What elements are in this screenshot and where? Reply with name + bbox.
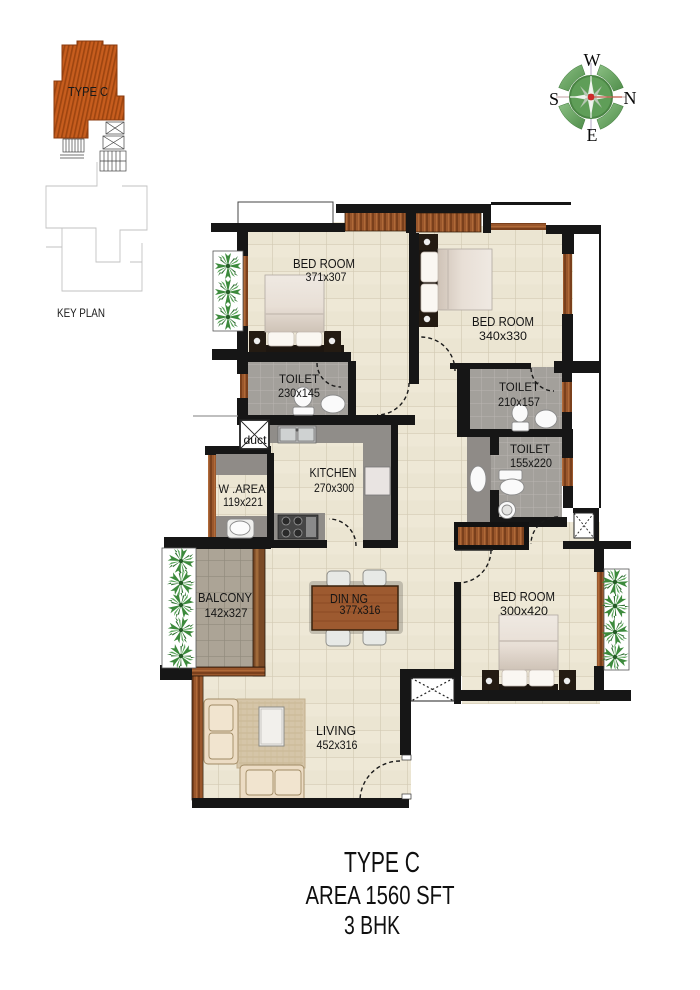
svg-text:300x420: 300x420: [500, 604, 548, 618]
svg-text:TOILET: TOILET: [279, 372, 320, 386]
svg-text:377x316: 377x316: [340, 603, 381, 617]
svg-text:270x300: 270x300: [314, 481, 354, 495]
svg-text:KEY PLAN: KEY PLAN: [57, 306, 105, 320]
svg-text:E: E: [587, 125, 598, 145]
svg-text:TYPE C: TYPE C: [344, 847, 420, 879]
svg-text:LIVING: LIVING: [316, 723, 356, 738]
svg-text:210x157: 210x157: [498, 395, 540, 409]
svg-text:BED ROOM: BED ROOM: [293, 256, 355, 271]
svg-text:TOILET: TOILET: [499, 380, 540, 394]
svg-text:N: N: [624, 88, 637, 108]
svg-text:TOILET: TOILET: [510, 442, 551, 456]
svg-text:BED ROOM: BED ROOM: [493, 589, 555, 604]
svg-text:W: W: [584, 50, 601, 70]
svg-text:duct: duct: [244, 433, 268, 447]
svg-text:S: S: [549, 89, 559, 109]
svg-text:BED ROOM: BED ROOM: [472, 314, 534, 329]
svg-text:371x307: 371x307: [306, 270, 347, 284]
svg-text:119x221: 119x221: [223, 495, 263, 509]
svg-text:KITCHEN: KITCHEN: [310, 465, 357, 480]
svg-text:452x316: 452x316: [317, 738, 358, 752]
svg-text:W .AREA: W .AREA: [219, 482, 266, 496]
svg-text:3 BHK: 3 BHK: [344, 910, 400, 940]
svg-text:340x330: 340x330: [479, 329, 527, 343]
svg-text:230x145: 230x145: [278, 386, 320, 400]
svg-text:BALCONY: BALCONY: [198, 590, 252, 605]
svg-text:TYPE C: TYPE C: [68, 84, 108, 99]
svg-text:142x327: 142x327: [205, 606, 248, 620]
svg-text:AREA 1560 SFT: AREA 1560 SFT: [306, 880, 455, 910]
svg-text:155x220: 155x220: [510, 456, 552, 470]
